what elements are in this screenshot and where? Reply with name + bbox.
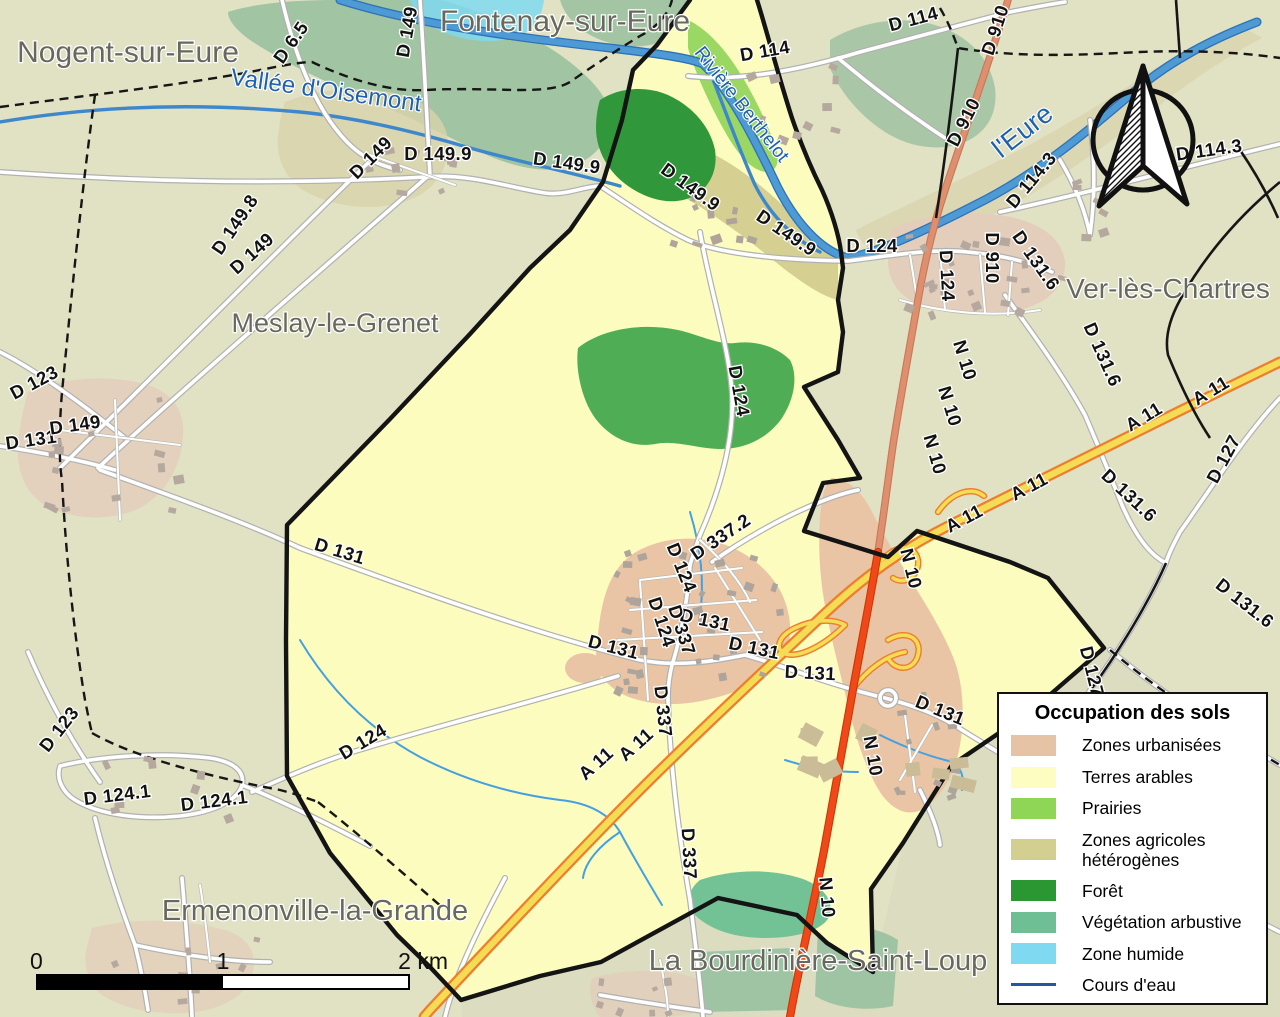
legend-item: Terres arables — [1011, 767, 1254, 788]
scale-bar-labels: 0 1 2 km — [36, 948, 410, 974]
building — [663, 977, 672, 986]
legend-title: Occupation des sols — [1011, 702, 1254, 725]
building — [649, 1010, 655, 1017]
building — [929, 284, 938, 290]
legend-swatch — [1011, 943, 1056, 964]
building — [391, 163, 401, 173]
scale-label-mid: 1 — [217, 948, 230, 975]
building — [54, 446, 64, 455]
scale-bar-segment-white — [223, 976, 408, 988]
legend-item: Zones urbanisées — [1011, 735, 1254, 756]
building — [972, 241, 979, 248]
legend-swatch — [1011, 912, 1056, 933]
road-label: D 124 — [936, 249, 960, 302]
legend-item-label: Zones agricoles hétérogènes — [1082, 830, 1254, 870]
place-label: Nogent-sur-Eure — [17, 36, 239, 69]
building — [718, 672, 727, 681]
legend-item: Cours d'eau — [1011, 975, 1254, 995]
building — [949, 757, 969, 770]
building — [173, 474, 185, 484]
building — [800, 728, 817, 739]
building — [148, 760, 156, 769]
legend-item: Zones agricoles hétérogènes — [1011, 830, 1254, 870]
legend-item: Végétation arbustive — [1011, 912, 1254, 933]
legend-swatch — [1011, 798, 1056, 819]
legend-item-label: Cours d'eau — [1082, 975, 1176, 995]
building — [640, 647, 648, 655]
legend-item: Forêt — [1011, 880, 1254, 901]
road-label: D 910 — [982, 232, 1003, 283]
place-label: Ermenonville-la-Grande — [162, 895, 468, 927]
legend-swatch — [1011, 735, 1056, 756]
building — [1081, 234, 1091, 241]
legend-item-label: Végétation arbustive — [1082, 912, 1242, 932]
place-label: La Bourdinière-Saint-Loup — [649, 945, 988, 977]
building — [623, 561, 632, 568]
legend-item-label: Zone humide — [1082, 944, 1184, 964]
place-label: Ver-lès-Chartres — [1066, 273, 1270, 304]
legend-item-label: Prairies — [1082, 798, 1141, 818]
building — [177, 998, 187, 1005]
legend-rows: Zones urbaniséesTerres arablesPrairiesZo… — [1011, 735, 1254, 995]
place-label: Fontenay-sur-Eure — [440, 5, 690, 38]
legend-item: Zone humide — [1011, 943, 1254, 964]
building — [905, 762, 920, 777]
building — [1021, 287, 1030, 293]
legend-swatch — [1011, 839, 1056, 860]
building — [776, 609, 784, 617]
road-label: D 149.9 — [404, 143, 472, 164]
scale-bar-segment-black — [38, 976, 223, 988]
map-stage: D 6.5D 149D 114D 114D 910D 910D 910D 114… — [0, 0, 1280, 1017]
legend-swatch — [1011, 983, 1056, 986]
building — [158, 463, 166, 473]
legend-swatch — [1011, 880, 1056, 901]
building — [822, 103, 832, 111]
legend-item-label: Zones urbanisées — [1082, 735, 1221, 755]
building — [932, 768, 950, 781]
building — [898, 790, 906, 795]
scale-bar: 0 1 2 km — [36, 948, 410, 990]
road-label: D 131 — [784, 661, 836, 685]
legend-swatch — [1011, 767, 1056, 788]
road-label: D 337 — [678, 827, 702, 879]
road-label: D 124 — [846, 235, 898, 256]
building — [623, 678, 630, 685]
building — [713, 654, 720, 660]
building — [736, 235, 744, 243]
scale-bar-rule — [36, 974, 410, 990]
legend: Occupation des sols Zones urbaniséesTerr… — [997, 692, 1268, 1005]
place-label: Meslay-le-Grenet — [231, 308, 439, 338]
road-label: N 10 — [815, 876, 839, 918]
legend-item-label: Forêt — [1082, 881, 1123, 901]
building — [832, 76, 838, 85]
building — [197, 771, 206, 780]
legend-item-label: Terres arables — [1082, 767, 1193, 787]
building — [48, 451, 55, 458]
legend-item: Prairies — [1011, 798, 1254, 819]
scale-label-end: 2 km — [398, 948, 448, 975]
scale-label-start: 0 — [30, 948, 43, 975]
building — [628, 686, 639, 694]
building — [598, 978, 604, 986]
